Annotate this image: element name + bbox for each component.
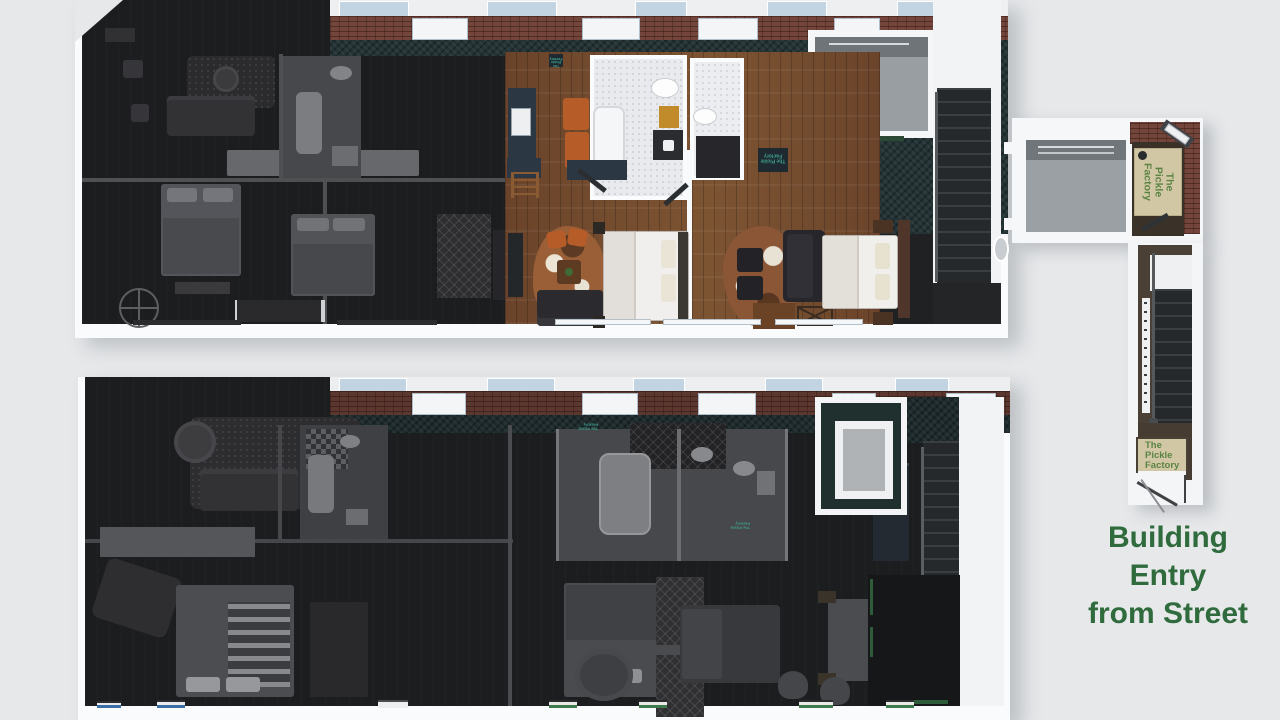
window: [582, 393, 638, 415]
skylight: [766, 379, 822, 391]
armchair: [123, 60, 143, 78]
green-trim: [908, 700, 948, 704]
skylight: [768, 2, 826, 16]
wardrobe: [310, 602, 368, 697]
toilet: [340, 435, 360, 448]
bed-white: [822, 235, 898, 309]
staircase-upper: [937, 88, 991, 283]
armchair-orange: [546, 230, 567, 249]
round-ottoman: [575, 649, 633, 701]
caption-line-3: from Street: [1064, 595, 1272, 633]
desk: [753, 303, 795, 329]
skylight: [340, 379, 406, 391]
vanity: [653, 130, 683, 160]
skylight: [634, 379, 684, 391]
blanket: [823, 236, 859, 308]
door-knob: [1138, 151, 1147, 160]
striped-blanket: [228, 602, 290, 687]
cube-chair: [737, 276, 763, 300]
cabinet-yellow: [659, 106, 679, 128]
wall: [677, 429, 681, 561]
window: [412, 393, 466, 415]
bed: [176, 585, 294, 697]
desk: [105, 28, 135, 42]
toilet: [693, 108, 717, 125]
green-trim: [870, 579, 873, 615]
window: [698, 18, 758, 40]
armchair: [778, 671, 808, 699]
vestibule-doormat-text: The Pickle Factory: [1142, 150, 1175, 214]
pillow: [875, 274, 890, 300]
coffee-table: [557, 260, 581, 284]
window: [582, 18, 640, 40]
skylight: [340, 2, 408, 16]
terrace-court: [905, 397, 961, 443]
armchair: [131, 104, 149, 122]
wall: [508, 425, 512, 706]
nightstand: [873, 312, 893, 325]
chaise: [682, 609, 722, 679]
ladder-shelf: [511, 172, 539, 198]
window: [412, 18, 468, 40]
floor-plan-upper: The Pickle Factory The Pickle Factory: [75, 0, 1008, 338]
mat-line: Pickle: [1153, 150, 1164, 214]
storage-room: [1026, 140, 1126, 232]
window-sill-bright: [663, 319, 761, 325]
unit-doormat: The Pickle Factory: [758, 148, 788, 172]
toilet: [691, 447, 713, 462]
entry-block-upper: The Pickle Factory: [1012, 118, 1203, 243]
wall: [82, 178, 508, 182]
bed: [291, 214, 375, 296]
sofa: [680, 605, 780, 683]
storage-back-wall: [1026, 140, 1126, 160]
round-table: [174, 421, 216, 463]
media-console: [508, 233, 523, 297]
shelf-line: [1038, 146, 1114, 148]
window-sill-bright: [775, 319, 863, 325]
window-mark-green: [799, 700, 833, 708]
shelf-line: [1038, 152, 1114, 154]
stair-railing: [921, 447, 924, 587]
armchair-orange: [567, 227, 589, 247]
toilet: [330, 66, 352, 80]
mat-line: Factory: [1145, 461, 1179, 471]
skylight: [896, 379, 948, 391]
bed-white: [603, 231, 689, 321]
sink: [663, 140, 674, 151]
dark-room: [868, 575, 960, 706]
stair-railing: [935, 92, 938, 282]
window-sill-bright: [555, 319, 651, 325]
entry-corridor: The Pickle Factory: [1128, 243, 1203, 505]
bathtub: [296, 92, 322, 154]
green-trim: [870, 627, 873, 657]
pillow: [203, 188, 233, 202]
unit-doormat-text: The Pickle Factory: [759, 152, 787, 163]
terrace-room: [815, 397, 907, 515]
bathroom-dim: [283, 56, 361, 178]
handrail: [1152, 253, 1155, 423]
bathtub: [599, 453, 651, 535]
wall-tab: [1004, 218, 1014, 230]
stair-landing-dark: [933, 283, 1001, 324]
terrace-inner-floor: [843, 429, 885, 491]
pillow: [875, 243, 890, 269]
bath-block-dim: [556, 429, 788, 561]
street-staircase: [1152, 289, 1192, 424]
pillow: [297, 218, 329, 231]
blanket: [604, 232, 636, 320]
blanket: [293, 244, 373, 294]
pillow: [167, 188, 197, 202]
shower: [696, 136, 740, 178]
pillow: [226, 677, 260, 692]
mat-line: The: [1164, 150, 1175, 214]
street-doormat: The Pickle Factory: [1136, 437, 1188, 473]
blanket: [163, 218, 239, 274]
building-entry-caption: Building Entry from Street: [1064, 519, 1272, 633]
nightstand: [818, 591, 836, 603]
cube-chair: [737, 248, 763, 272]
staircase-lower: [923, 441, 961, 583]
plant: [565, 268, 573, 276]
window-mark-blue: [97, 701, 121, 708]
sink: [757, 471, 775, 495]
pillow: [661, 274, 676, 302]
terrace-inner-box: [835, 421, 893, 499]
headboard: [678, 232, 688, 320]
window-mark-green: [886, 700, 914, 708]
floorplan-render-canvas: The Pickle Factory The Pickle Factory: [0, 0, 1280, 720]
kitchen-sink: [511, 108, 531, 136]
skylight: [488, 379, 554, 391]
unit-doormat-text: The Pickle Factory: [578, 422, 598, 430]
bench: [175, 282, 230, 294]
toilet: [651, 78, 679, 98]
window-mark-blue: [157, 700, 185, 708]
floor-plan-lower: The Pickle Factory The Pickle Factory: [78, 377, 1010, 720]
sofa-cushions: [787, 234, 813, 298]
kitchen-counter: [508, 88, 536, 158]
window-seat: [567, 160, 627, 180]
sofa: [200, 469, 298, 511]
unit-doormat-text: The Pickle Factory: [549, 56, 563, 67]
bathtub: [593, 106, 625, 166]
skylight: [636, 2, 686, 16]
caption-line-2: Entry: [1064, 557, 1272, 595]
unit-doormat: The Pickle Factory: [549, 54, 563, 67]
desk: [235, 300, 325, 322]
headboard-brick-wall: [898, 220, 910, 318]
window-mark-green: [639, 700, 667, 708]
sofa-dark: [783, 230, 825, 302]
window-mark-gray: [378, 700, 408, 708]
stair-landing-top: [1150, 255, 1192, 291]
bathroom-dim: [300, 425, 388, 543]
counter: [100, 527, 255, 557]
balusters: [1144, 302, 1147, 408]
door-threshold: [1138, 471, 1186, 481]
rug: [437, 214, 491, 298]
bed: [161, 184, 241, 276]
window-sill-dark: [133, 320, 241, 325]
sink: [346, 509, 368, 525]
wall-tab: [1004, 142, 1014, 154]
pillow: [186, 677, 220, 692]
wall: [278, 425, 282, 543]
shelf-line: [829, 43, 909, 45]
pillow: [333, 218, 365, 231]
toilet: [733, 461, 755, 476]
round-window: [993, 236, 1009, 262]
nightstand: [873, 220, 893, 233]
bathtub: [308, 455, 334, 513]
stair-stringer: [1142, 298, 1150, 413]
hallway-white: [959, 397, 1004, 706]
caption-line-1: Building: [1064, 519, 1272, 557]
door-frame-line: [1184, 475, 1186, 503]
sofa: [167, 96, 255, 136]
coffee-table: [213, 66, 239, 92]
nightstand: [593, 222, 605, 234]
dining-chair-orange: [563, 98, 589, 130]
unit-doormat-text: The Pickle Factory: [730, 521, 750, 529]
window: [698, 393, 756, 415]
window-mark-green: [549, 700, 577, 708]
vanity-sink: [332, 146, 358, 166]
pillow: [661, 240, 676, 268]
window-sill-dark: [337, 320, 437, 325]
skylight: [488, 2, 556, 16]
street-doormat-text: The Pickle Factory: [1145, 441, 1179, 471]
